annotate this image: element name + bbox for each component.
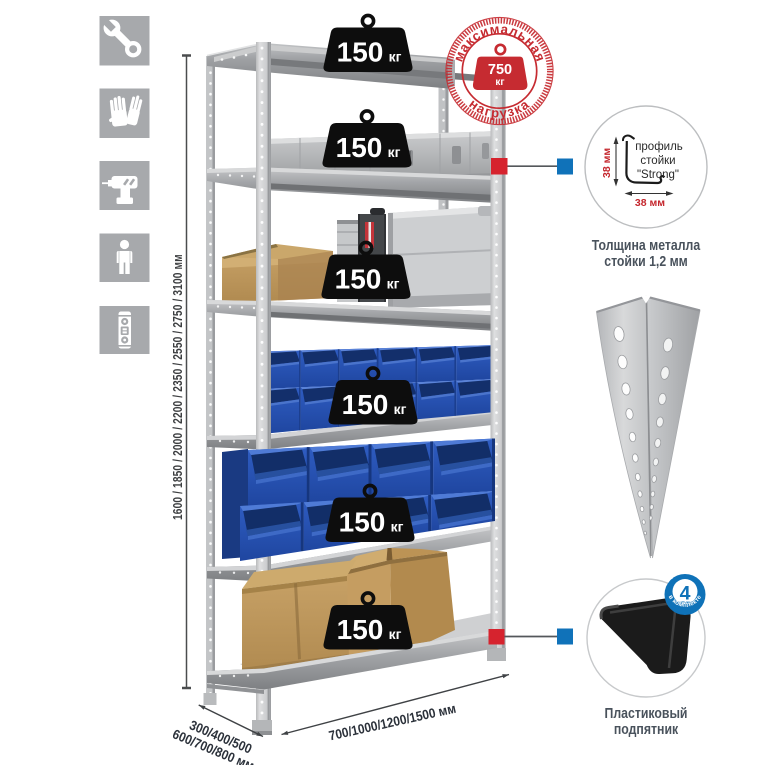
svg-text:кг: кг xyxy=(389,626,402,642)
svg-text:стойки 1,2 мм: стойки 1,2 мм xyxy=(604,253,688,269)
svg-text:150: 150 xyxy=(339,507,386,538)
svg-text:кг: кг xyxy=(391,519,404,535)
svg-text:150: 150 xyxy=(342,389,389,420)
svg-text:150: 150 xyxy=(335,264,382,295)
svg-text:кг: кг xyxy=(387,276,400,292)
svg-text:кг: кг xyxy=(389,49,402,65)
svg-text:стойки: стойки xyxy=(640,155,675,167)
svg-text:Пластиковый: Пластиковый xyxy=(605,705,688,721)
svg-text:750: 750 xyxy=(488,62,512,78)
svg-text:38 мм: 38 мм xyxy=(635,197,665,209)
svg-text:профиль: профиль xyxy=(635,141,683,153)
svg-text:38 мм: 38 мм xyxy=(601,148,613,178)
svg-text:кг: кг xyxy=(495,77,504,88)
svg-text:150: 150 xyxy=(337,614,384,645)
svg-text:"Strong": "Strong" xyxy=(637,169,679,181)
svg-text:150: 150 xyxy=(336,132,383,163)
svg-text:кг: кг xyxy=(394,401,407,417)
svg-text:150: 150 xyxy=(337,37,384,68)
svg-text:подпятник: подпятник xyxy=(614,721,678,737)
svg-text:1600 / 1850 / 2000 / 2200 / 23: 1600 / 1850 / 2000 / 2200 / 2350 / 2550 … xyxy=(171,254,185,520)
svg-text:700/1000/1200/1500 мм: 700/1000/1200/1500 мм xyxy=(327,700,457,744)
svg-text:Толщина металла: Толщина металла xyxy=(592,237,701,253)
svg-text:кг: кг xyxy=(388,144,401,160)
